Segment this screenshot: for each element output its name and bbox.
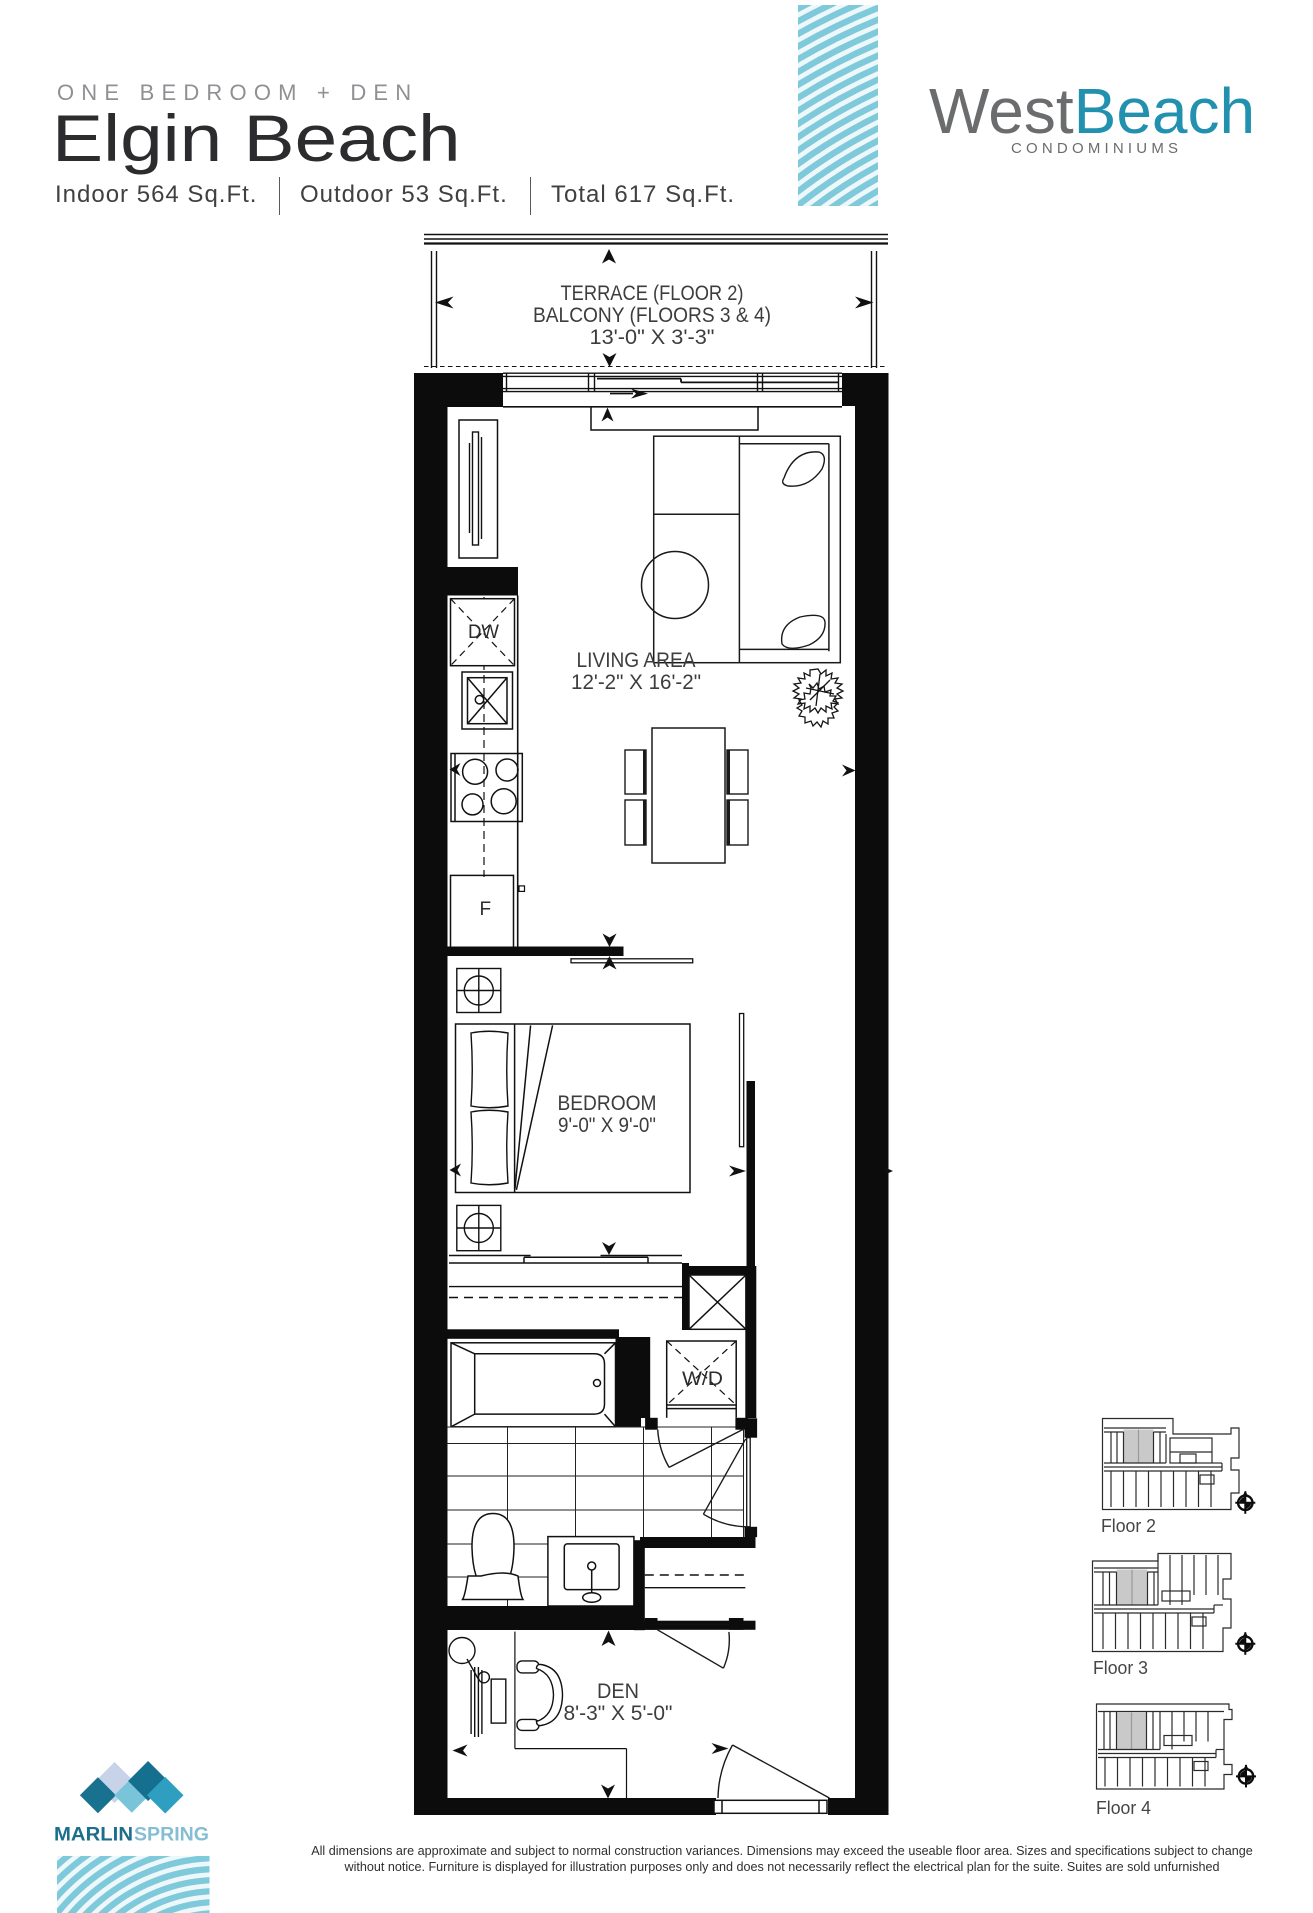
svg-text:Floor 3: Floor 3 — [1093, 1658, 1148, 1678]
svg-text:SPRING: SPRING — [134, 1825, 209, 1846]
svg-text:DEN: DEN — [597, 1679, 639, 1703]
svg-text:13'-0" X 3'-3": 13'-0" X 3'-3" — [590, 325, 715, 349]
svg-text:BEDROOM: BEDROOM — [558, 1091, 657, 1115]
svg-text:Floor 4: Floor 4 — [1096, 1798, 1151, 1818]
svg-text:F: F — [480, 899, 492, 920]
svg-text:Floor 2: Floor 2 — [1101, 1516, 1156, 1536]
svg-text:MARLIN: MARLIN — [54, 1825, 133, 1846]
svg-text:8'-3" X 5'-0": 8'-3" X 5'-0" — [564, 1701, 673, 1725]
svg-text:TERRACE (FLOOR 2): TERRACE (FLOOR 2) — [561, 281, 744, 305]
svg-text:12'-2" X 16'-2": 12'-2" X 16'-2" — [571, 670, 701, 694]
svg-text:9'-0" X 9'-0": 9'-0" X 9'-0" — [558, 1113, 656, 1137]
svg-text:W/D: W/D — [682, 1369, 723, 1390]
svg-text:LIVING AREA: LIVING AREA — [577, 648, 697, 672]
svg-text:DW: DW — [468, 622, 499, 643]
svg-text:BALCONY (FLOORS 3 & 4): BALCONY (FLOORS 3 & 4) — [533, 303, 771, 327]
